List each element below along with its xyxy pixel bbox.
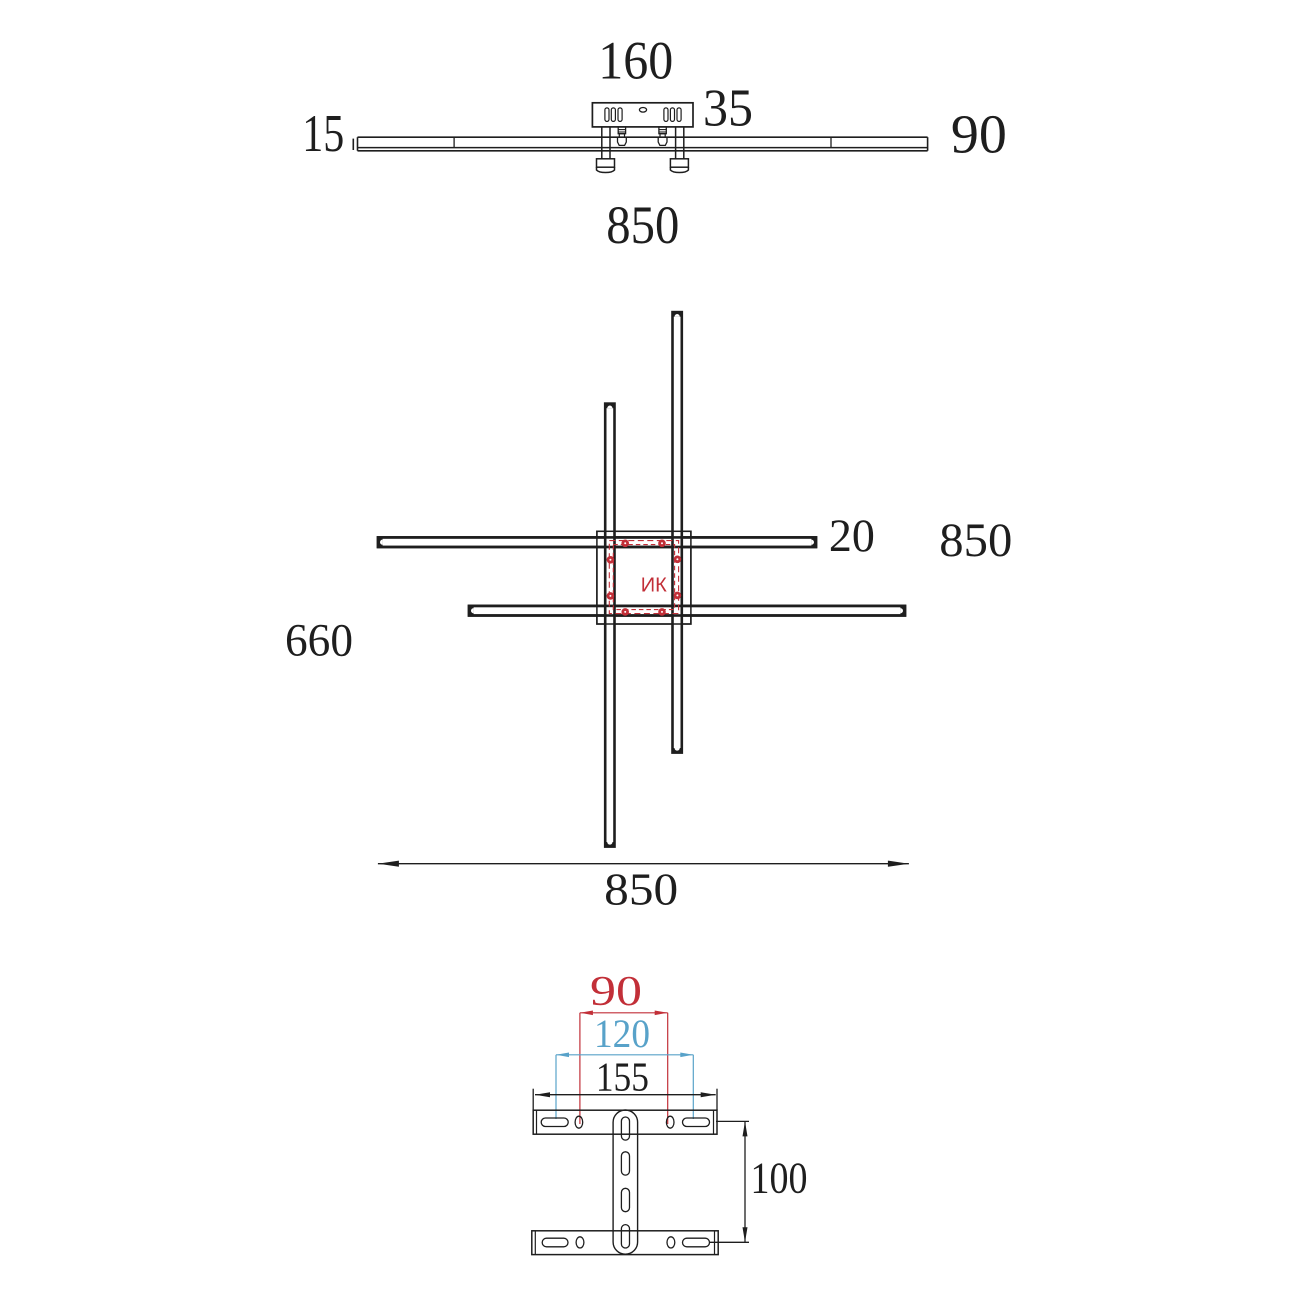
- svg-text:90: 90: [590, 969, 642, 1015]
- svg-text:20: 20: [829, 510, 875, 562]
- svg-text:90: 90: [951, 104, 1007, 165]
- svg-text:660: 660: [285, 614, 353, 666]
- svg-text:155: 155: [596, 1053, 649, 1099]
- svg-text:35: 35: [703, 79, 753, 137]
- svg-text:850: 850: [939, 514, 1012, 567]
- svg-text:120: 120: [594, 1011, 650, 1056]
- svg-text:ИК: ИК: [641, 575, 667, 597]
- svg-text:850: 850: [604, 864, 678, 915]
- svg-text:160: 160: [598, 31, 673, 91]
- svg-text:100: 100: [751, 1154, 808, 1203]
- svg-text:850: 850: [606, 195, 679, 255]
- svg-text:15: 15: [302, 105, 344, 163]
